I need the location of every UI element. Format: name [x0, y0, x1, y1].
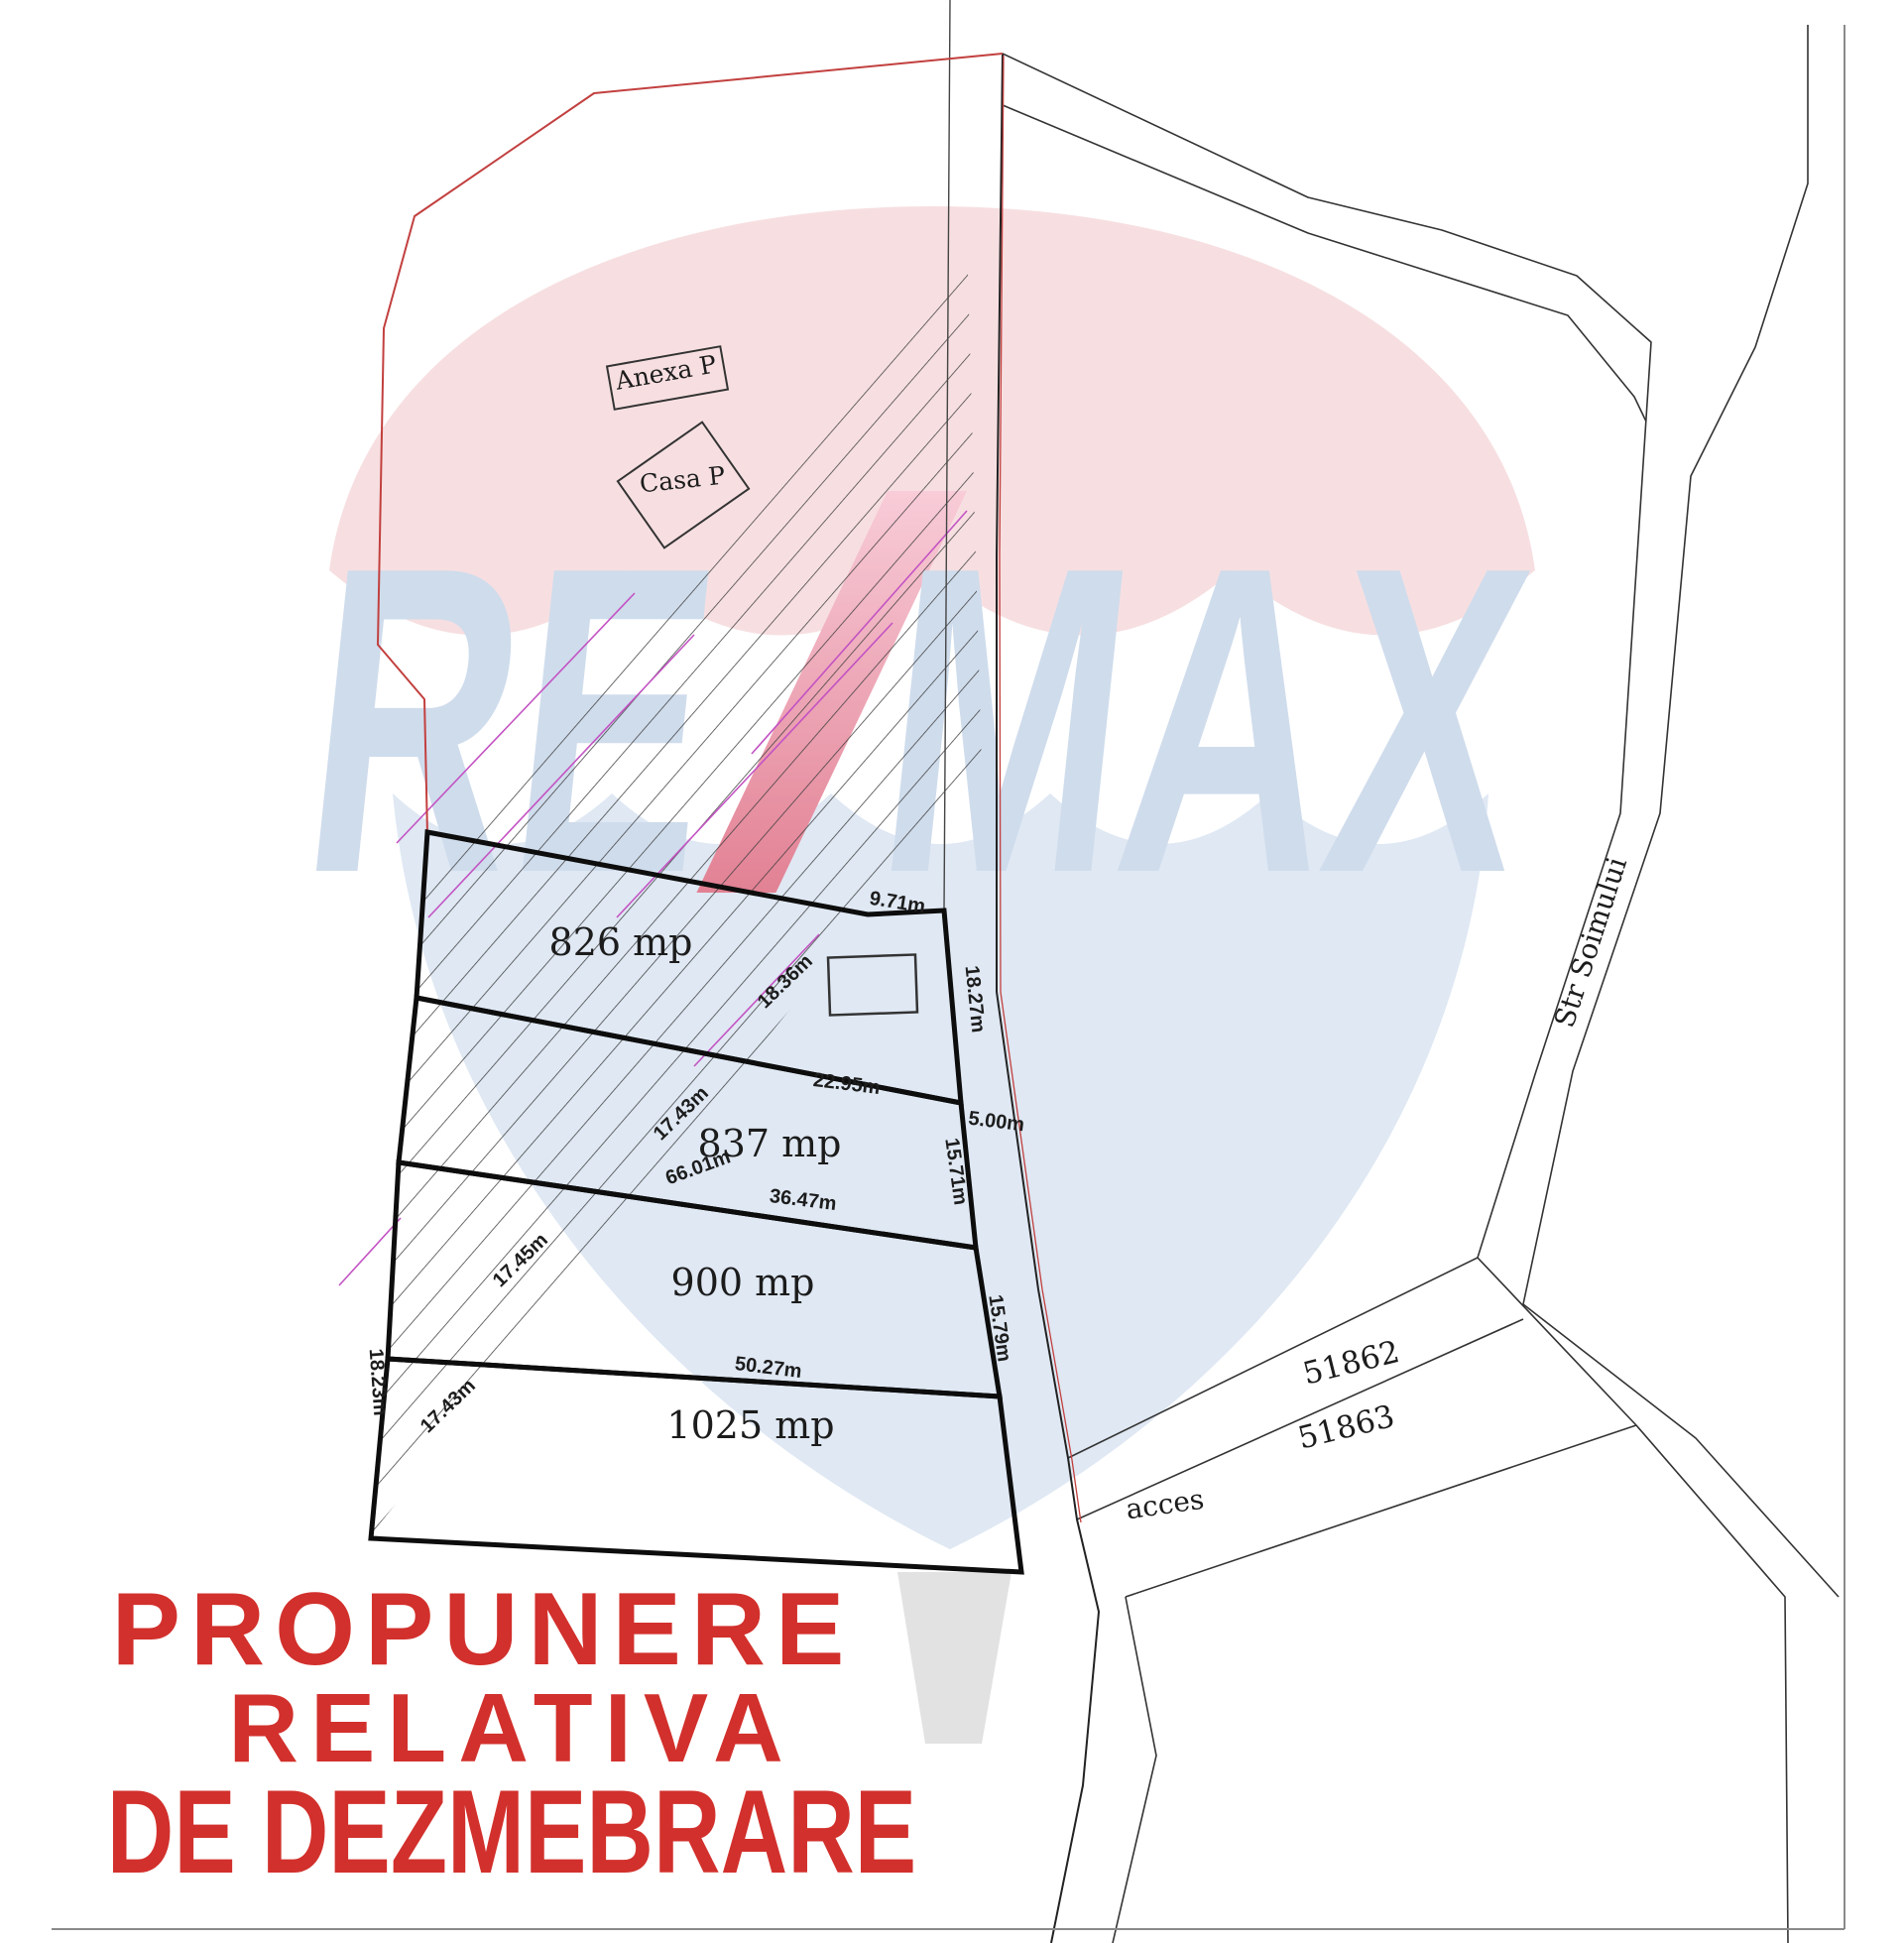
label-acces: acces [1124, 1483, 1206, 1526]
area-826: 826 mp [549, 920, 693, 964]
street-edge-east [1523, 25, 1839, 1597]
road-number-51863: 51863 [1294, 1398, 1397, 1457]
area-900: 900 mp [671, 1261, 815, 1304]
cadastral-plan-page: RE MAX [0, 0, 1904, 1943]
cadastral-plan-drawing: RE MAX [0, 0, 1904, 1943]
title-line-3: DE DEZMEBRARE [107, 1765, 916, 1898]
dim-18-23: 18.23m [365, 1348, 392, 1416]
street-name: Str Soimului [1548, 853, 1633, 1032]
road-number-51862: 51862 [1299, 1334, 1402, 1393]
area-837: 837 mp [698, 1122, 842, 1165]
title-line-1: PROPUNERE [112, 1572, 855, 1687]
south-road-edge [1113, 1597, 1156, 1943]
area-1025: 1025 mp [666, 1403, 834, 1447]
balloon-basket [897, 1572, 1011, 1744]
